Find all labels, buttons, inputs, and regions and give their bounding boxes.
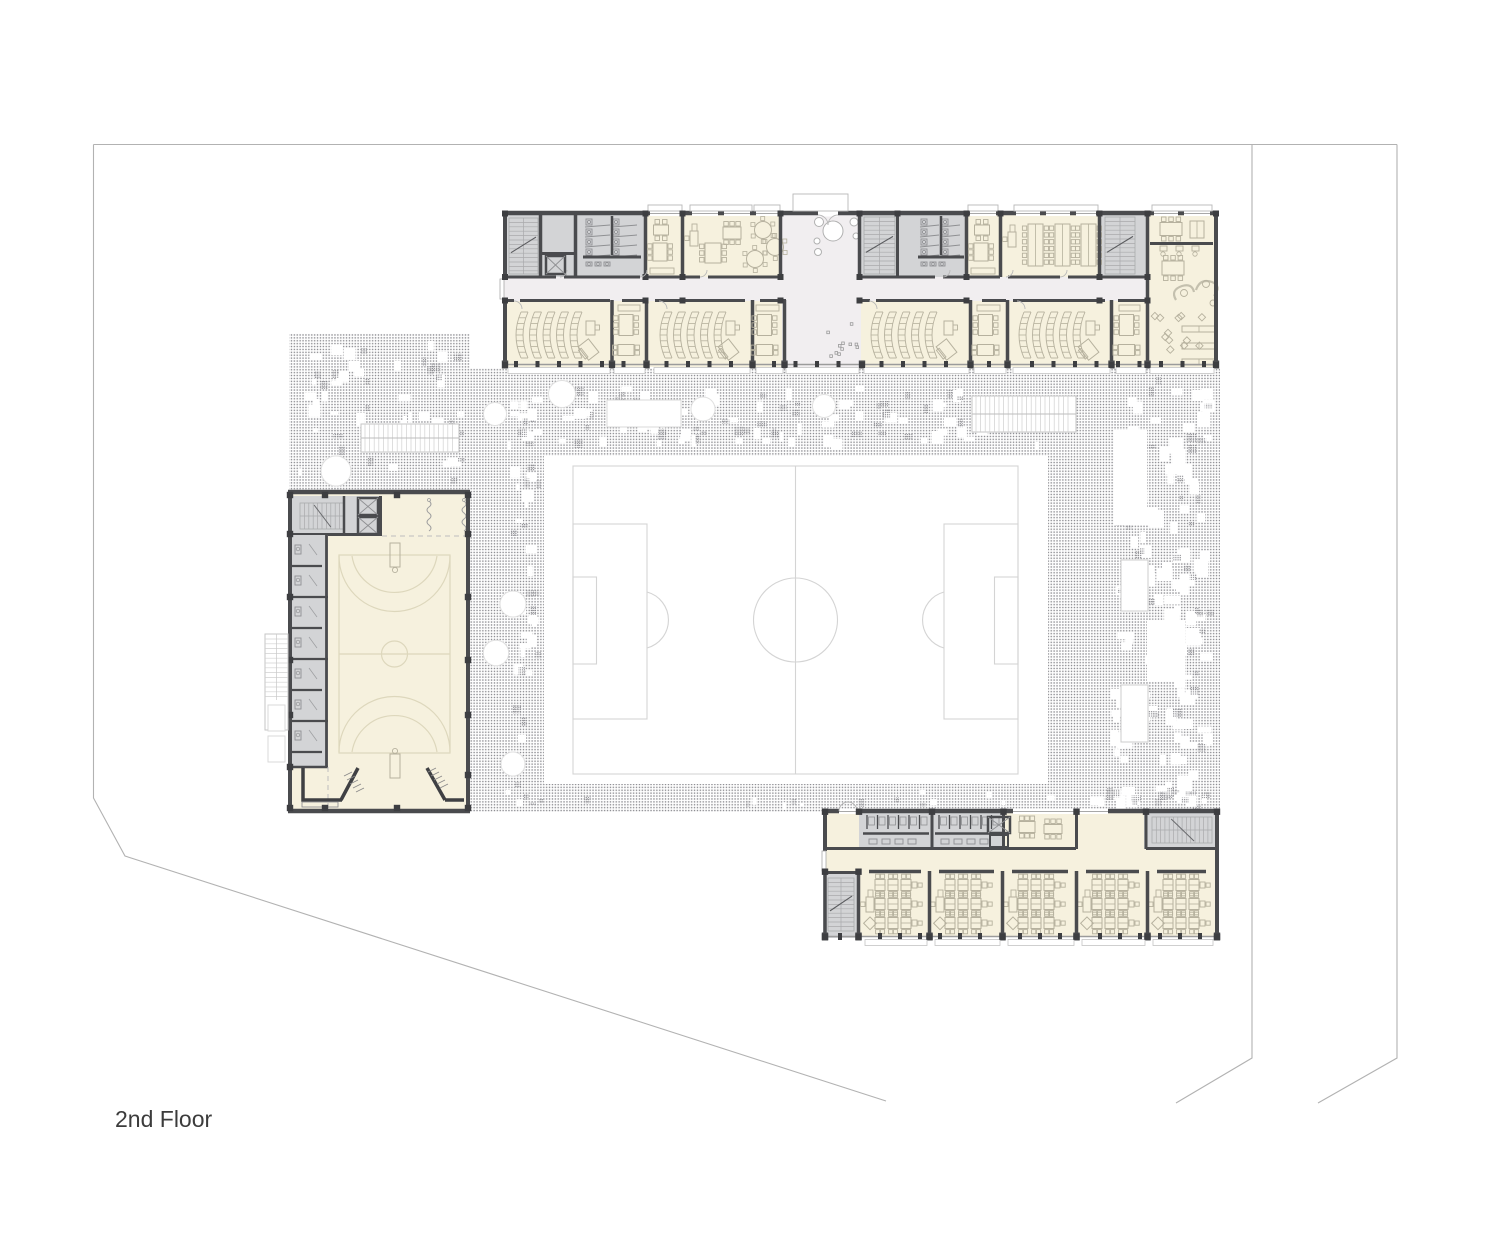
svg-text:2nd Floor: 2nd Floor <box>115 1106 213 1132</box>
